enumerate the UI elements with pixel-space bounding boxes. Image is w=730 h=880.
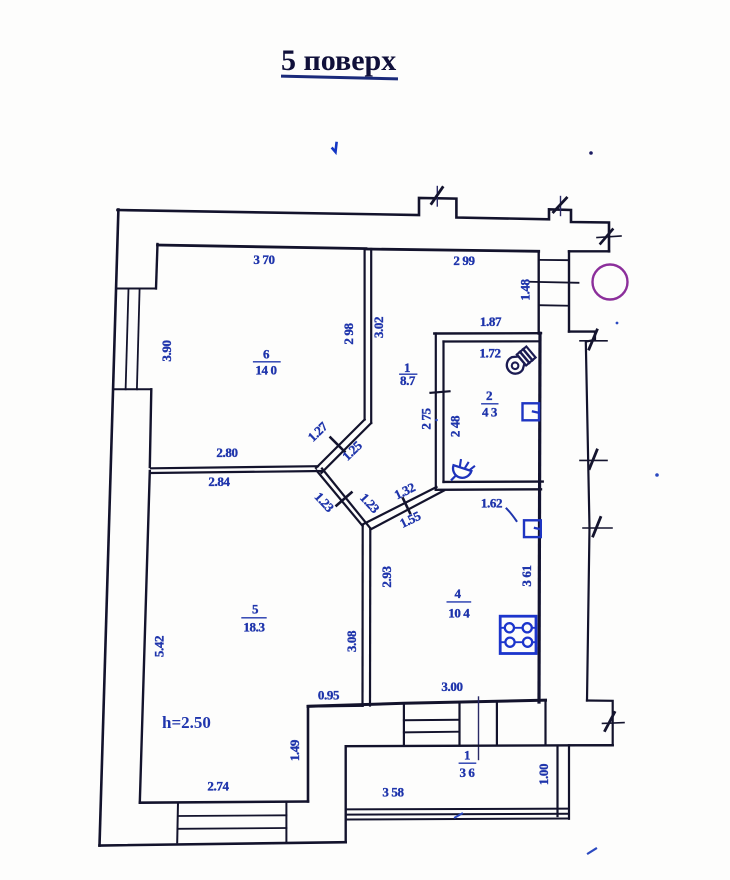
svg-text:2.80: 2.80 — [216, 445, 237, 460]
svg-text:2 99: 2 99 — [453, 253, 475, 268]
svg-text:18.3: 18.3 — [243, 620, 265, 635]
svg-text:1.55: 1.55 — [397, 508, 423, 531]
svg-text:2: 2 — [486, 388, 492, 403]
svg-text:h=2.50: h=2.50 — [162, 713, 211, 732]
svg-text:1.23: 1.23 — [312, 489, 338, 515]
svg-text:4 3: 4 3 — [482, 405, 498, 420]
svg-text:14 0: 14 0 — [255, 363, 276, 378]
svg-text:3.08: 3.08 — [344, 630, 359, 652]
svg-text:10 4: 10 4 — [448, 606, 470, 621]
svg-text:1.48: 1.48 — [518, 279, 533, 301]
svg-text:1.00: 1.00 — [536, 764, 551, 785]
svg-text:2.93: 2.93 — [379, 566, 394, 588]
svg-text:1.49: 1.49 — [287, 739, 302, 761]
svg-text:2 48: 2 48 — [448, 415, 463, 437]
svg-text:2.74: 2.74 — [207, 779, 229, 794]
svg-text:1: 1 — [464, 748, 470, 763]
svg-text:3 6: 3 6 — [459, 765, 475, 780]
svg-text:1.87: 1.87 — [480, 314, 502, 329]
svg-text:2 98: 2 98 — [341, 323, 356, 345]
svg-text:2.84: 2.84 — [208, 474, 230, 489]
svg-text:5: 5 — [252, 602, 259, 617]
svg-text:1.27: 1.27 — [305, 418, 331, 444]
svg-text:1.23: 1.23 — [357, 490, 383, 516]
svg-text:3.02: 3.02 — [371, 317, 386, 338]
svg-text:6: 6 — [263, 347, 270, 362]
svg-text:3 61: 3 61 — [519, 565, 534, 586]
svg-text:1.62: 1.62 — [481, 496, 502, 511]
svg-text:1.72: 1.72 — [479, 346, 500, 361]
svg-text:8.7: 8.7 — [400, 373, 416, 388]
svg-text:3.90: 3.90 — [159, 340, 174, 361]
svg-text:3 70: 3 70 — [253, 252, 274, 267]
svg-text:5.42: 5.42 — [151, 636, 166, 657]
svg-text:3.00: 3.00 — [441, 679, 462, 694]
svg-text:0.95: 0.95 — [318, 688, 340, 703]
svg-text:4: 4 — [454, 586, 461, 601]
svg-text:3 58: 3 58 — [382, 785, 404, 800]
svg-text:2 75: 2 75 — [419, 408, 434, 430]
